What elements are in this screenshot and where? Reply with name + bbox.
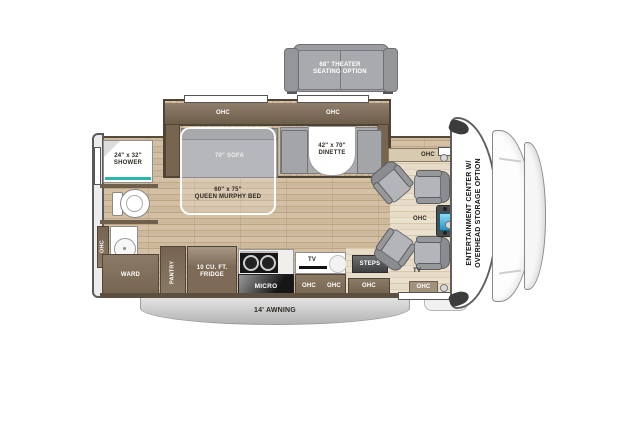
rear-window [94,147,101,185]
burner [260,255,276,271]
toilet-seat [126,195,143,212]
wardrobe-label: WARD [103,272,158,279]
theater-seating-option: 68" THEATER SEATING OPTION [284,44,396,96]
theater-option-line1: 68" THEATER [294,62,386,69]
entertainment-center-label: ENTERTAINMENT CENTER W/ OVERHEAD STORAGE… [464,120,482,306]
dinette-table: 42" x 70" DINETTE [308,126,356,176]
entry-lower-cabinet: OHC [348,278,390,294]
pantry: PANTRY [160,246,186,298]
ohc-label-kitchen-1: OHC [297,283,321,290]
ohc-label-door: OHC [410,284,437,291]
tv-counter: TV [295,252,346,274]
kitchen-sink [329,255,347,273]
toilet-bowl [120,189,150,218]
dinette-bench-left [281,130,308,174]
hood-line [499,157,521,162]
murphy-line1: 60" x 75" [182,187,274,194]
ohc-label-slideout-left: OHC [205,110,241,117]
tv-screen-bar [299,266,327,269]
tv-label-cab: TV [408,268,426,275]
murphy-bed-label: 60" x 75" QUEEN MURPHY BED [182,187,274,201]
shower-line1: 24" x 32" [104,153,152,160]
shower-label: 24" x 32" SHOWER [104,153,152,167]
pantry-label: PANTRY [170,260,177,283]
dinette-line2: DINETTE [309,150,355,157]
captain-chair [412,236,450,270]
slideout-wall-left [165,124,180,177]
captain-chair [412,170,450,204]
overhead-cabinet-strip: OHC OHC [165,103,389,126]
rv-floorplan: 68" THEATER SEATING OPTION 14' AWNING OH… [0,0,640,436]
cooktop [240,251,278,273]
shower-glass-door [105,177,151,180]
shower-line2: SHOWER [104,160,152,167]
theater-option-label: 68" THEATER SEATING OPTION [294,62,386,76]
window [297,95,369,103]
sink-drain [123,247,126,250]
cab-cupholder [440,284,448,292]
chair-armrest [416,197,442,204]
ohc-label-dash: OHC [408,216,432,223]
dinette-label: 42" x 70" DINETTE [309,143,355,157]
ohc-label-rear: OHC [100,241,107,254]
cab-cupholder [440,154,448,162]
windshield: ENTERTAINMENT CENTER W/ OVERHEAD STORAGE… [450,117,497,309]
shower: 24" x 32" SHOWER [103,140,153,183]
fridge-line1: 10 CU. FT. [188,265,236,272]
tv-label-kitchen: TV [298,257,326,264]
dinette-bench-right [357,130,382,174]
burner [243,255,259,271]
hood-line [499,269,521,274]
dash-knob [443,231,447,235]
ohc-label-kitchen-2: OHC [322,283,346,290]
dash-knob [443,207,447,211]
chair-armrest [416,170,442,177]
murphy-line2: QUEEN MURPHY BED [182,194,274,201]
murphy-bed-outline: 60" x 75" QUEEN MURPHY BED [180,127,276,215]
fridge-label: 10 CU. FT. FRIDGE [188,265,236,279]
fridge: 10 CU. FT. FRIDGE [187,246,237,298]
bath-wall [100,220,158,224]
entertainment-line2: OVERHEAD STORAGE OPTION [474,120,483,306]
chair-armrest [416,236,442,243]
awning-label: 14' AWNING [141,307,409,315]
cooktop-trim [240,251,278,253]
toilet [112,189,150,217]
entertainment-line1: ENTERTAINMENT CENTER W/ [464,120,473,306]
ohc-label-entry: OHC [349,283,389,290]
ohc-label-slideout-right: OHC [315,110,351,117]
window [184,95,268,103]
dinette-line1: 42" x 70" [309,143,355,150]
awning: 14' AWNING [140,297,410,325]
bath-wall [100,184,158,188]
theater-option-line2: SEATING OPTION [294,69,386,76]
fridge-line2: FRIDGE [188,272,236,279]
front-bumper [524,142,546,290]
wardrobe: WARD [102,254,159,296]
microwave-label: MICRO [239,283,293,291]
bottom-window [398,292,452,300]
